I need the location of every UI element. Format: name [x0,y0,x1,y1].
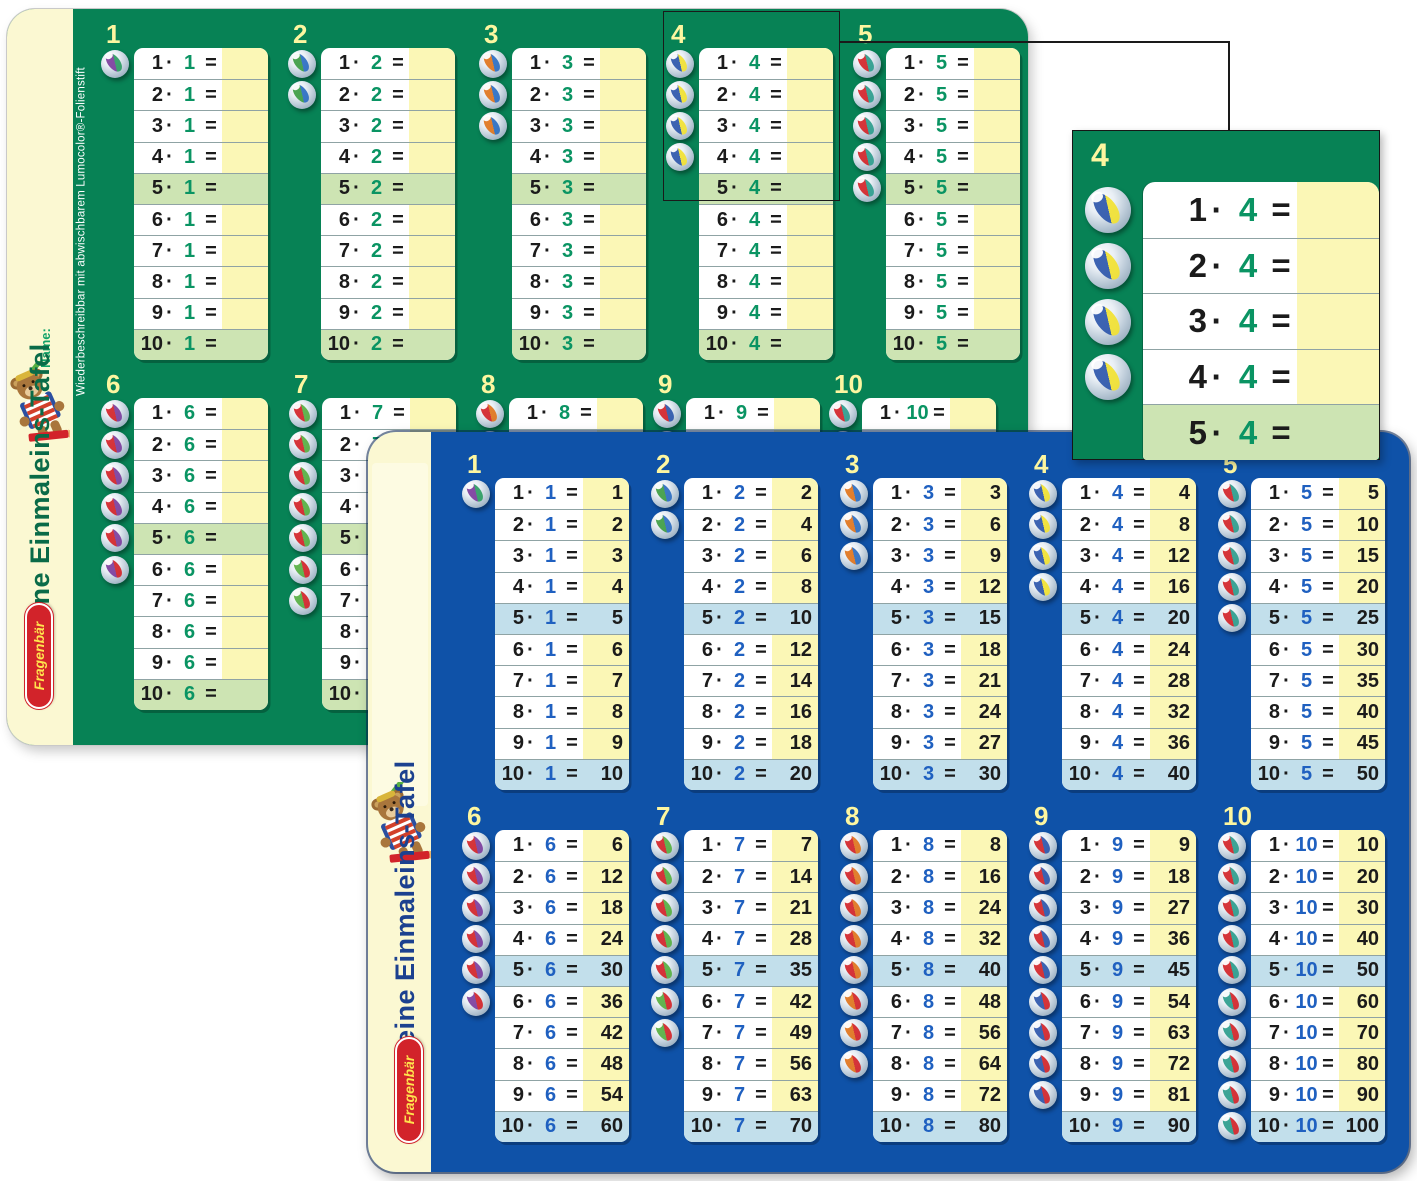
answer-cell [409,111,455,141]
column-group-6: 61·6=2·6=3·6=4·6=5·6=6·6=7·6=8·6=9·6=10·… [98,398,270,743]
answer-cell [600,80,646,110]
equals-sign: = [768,240,784,263]
equals-sign: = [581,302,597,325]
equals-sign: = [942,670,958,693]
answer-cell [974,267,1020,297]
answer-cell: 21 [961,666,1007,696]
equation-row: 10·1= [134,329,268,360]
answer-cell: 12 [1150,541,1196,571]
factor: 10 [1293,928,1320,951]
factor: 3 [915,545,942,568]
equation: 9·3= [873,729,961,759]
equation: 3·1= [134,111,222,141]
equals-sign: = [1320,928,1336,951]
operator-dot: · [1280,732,1293,755]
equation: 8·6= [495,1049,583,1079]
equals-sign: = [1320,639,1336,662]
equation-row: 2·6= [134,429,268,460]
operator-dot: · [1280,1115,1293,1138]
equation: 6·6= [495,987,583,1017]
answer-cell [409,80,455,110]
equation-row: 4·9=36 [1062,924,1196,955]
multiplicand: 2 [134,84,163,107]
equation-row: 4·6= [134,492,268,523]
equation: 10·4= [1062,760,1150,790]
equals-sign: = [942,959,958,982]
equals-sign: = [1320,607,1336,630]
equation-row: 9·4=36 [1062,728,1196,759]
equals-sign: = [1320,545,1336,568]
marble-icon [853,81,881,109]
answer-cell [222,111,268,141]
answer-cell [974,205,1020,235]
operator-dot: · [163,683,176,706]
operator-dot: · [163,333,176,356]
multiplicand: 6 [134,209,163,232]
equation-row: 6·8=48 [873,986,1007,1017]
operator-dot: · [713,1084,726,1107]
factor: 2 [363,209,390,232]
equation-row: 5·1= [134,173,268,204]
equation-row: 9·7=63 [684,1080,818,1111]
callout-line-vertical [1228,41,1230,131]
equation-row: 1·7=7 [684,830,818,861]
marble-icon [651,988,679,1016]
operator-dot: · [915,302,928,325]
factor: 10 [1293,866,1320,889]
operator-dot: · [524,514,537,537]
equation-row: 6·9=54 [1062,986,1196,1017]
equation-row: 6·2=12 [684,634,818,665]
factor: 4 [1227,191,1269,229]
equals-sign: = [753,701,769,724]
marble-icon [462,863,490,891]
factor: 7 [726,991,753,1014]
factor: 6 [176,465,203,488]
multiplicand: 2 [873,866,902,889]
factor: 2 [363,333,390,356]
answer-cell [950,398,996,429]
column-group-5: 51·5=2·5=3·5=4·5=5·5=6·5=7·5=8·5=9·5=10·… [850,48,1022,393]
answer-cell: 42 [583,1018,629,1048]
equation-card: 1·2=2·2=3·2=4·2=5·2=6·2=7·2=8·2=9·2=10·2… [321,48,455,360]
marble-icon [651,894,679,922]
column-group-3: 31·3=32·3=63·3=94·3=125·3=156·3=187·3=21… [837,478,1009,823]
multiplicand: 4 [1062,576,1091,599]
multiplicand: 10 [321,333,350,356]
detail-inset: 4 1·4=2·4=3·4=4·4=5·4= [1072,130,1380,460]
equation-row: 9·9=81 [1062,1080,1196,1111]
factor: 1 [176,84,203,107]
equation: 6·8= [873,987,961,1017]
equation-row: 5·8=40 [873,955,1007,986]
marble-icon [1218,480,1246,508]
equation-row: 1·8= [509,398,643,429]
factor: 5 [928,240,955,263]
operator-dot: · [902,959,915,982]
multiplicand: 10 [1251,763,1280,786]
multiplicand: 10 [699,333,728,356]
operator-dot: · [541,115,554,138]
equation: 6·2= [684,635,772,665]
equation-row: 1·10= [862,398,996,429]
operator-dot: · [713,1115,726,1138]
operator-dot: · [163,84,176,107]
factor: 2 [726,670,753,693]
multiplicand: 5 [1251,607,1280,630]
answer-cell: 72 [1150,1049,1196,1079]
factor: 5 [928,271,955,294]
factor: 6 [176,527,203,550]
equation-card: 1·3=2·3=3·3=4·3=5·3=6·3=7·3=8·3=9·3=10·3… [512,48,646,360]
equation-row: 3·6=18 [495,892,629,923]
operator-dot: · [1091,639,1104,662]
factor: 3 [554,209,581,232]
equation-row: 4·4= [1143,349,1379,405]
equation-row: 3·6= [134,460,268,491]
operator-dot: · [902,639,915,662]
equation: 9·3= [512,299,600,329]
equation: 5·2= [684,604,772,634]
answer-cell: 3 [583,541,629,571]
factor: 6 [537,834,564,857]
equation-row: 5·5=25 [1251,603,1385,634]
answer-cell: 70 [772,1112,818,1142]
equation: 4·1= [495,573,583,603]
equation: 8·5= [886,267,974,297]
equation: 3·5= [886,111,974,141]
operator-dot: · [541,146,554,169]
equation-row: 7·6=42 [495,1017,629,1048]
factor: 8 [915,928,942,951]
equation: 3·3= [512,111,600,141]
equation-row: 5·6= [134,523,268,554]
factor: 8 [915,959,942,982]
equation-row: 2·5= [886,79,1020,110]
equation: 3·1= [495,541,583,571]
equation-row: 2·9=18 [1062,861,1196,892]
marble-icon [853,143,881,171]
multiplicand: 10 [684,763,713,786]
answer-cell: 48 [583,1049,629,1079]
factor: 6 [537,928,564,951]
equals-sign: = [955,302,971,325]
operator-dot: · [713,834,726,857]
marble-icon [1218,1019,1246,1047]
equation-row: 1·6= [134,398,268,429]
equals-sign: = [955,209,971,232]
equation: 2·7= [684,862,772,892]
equals-sign: = [203,402,219,425]
factor: 3 [915,732,942,755]
operator-dot: · [902,732,915,755]
factor: 6 [537,1084,564,1107]
equation: 5·2= [321,174,409,204]
equation: 4·9= [1062,925,1150,955]
answer-cell: 14 [772,666,818,696]
equation-card: 1·4=42·4=83·4=124·4=165·4=206·4=247·4=28… [1062,478,1196,790]
marble-icon [651,925,679,953]
multiplicand: 5 [1251,959,1280,982]
factor: 5 [1293,763,1320,786]
equation-row: 9·3=27 [873,728,1007,759]
equation: 10·1= [495,760,583,790]
equals-sign: = [1131,928,1147,951]
multiplicand: 10 [873,763,902,786]
marble-icon [1029,925,1057,953]
equals-sign: = [955,115,971,138]
equation: 1·8= [873,830,961,861]
operator-dot: · [524,834,537,857]
answer-cell [600,330,646,360]
marble-icon [101,462,129,490]
marble-icon [1029,573,1057,601]
answer-cell [222,236,268,266]
equals-sign: = [203,177,219,200]
equation: 2·3= [873,510,961,540]
factor: 1 [537,732,564,755]
equation: 8·1= [495,697,583,727]
multiplicand: 2 [1159,247,1207,285]
equation: 1·8= [509,398,597,429]
equals-sign: = [203,302,219,325]
operator-dot: · [902,763,915,786]
equals-sign: = [564,1084,580,1107]
equation: 3·10= [1251,893,1339,923]
equals-sign: = [564,834,580,857]
multiplicand: 10 [134,683,163,706]
multiplicand: 2 [886,84,915,107]
equation-row: 2·2=4 [684,509,818,540]
equation: 10·3= [512,330,600,360]
factor: 4 [1104,482,1131,505]
equation: 9·2= [684,729,772,759]
equals-sign: = [203,527,219,550]
equation-row: 1·5= [886,48,1020,79]
operator-dot: · [538,402,551,425]
equation: 2·4= [1062,510,1150,540]
operator-dot: · [902,1053,915,1076]
operator-dot: · [163,177,176,200]
factor: 2 [726,701,753,724]
answer-cell: 27 [1150,893,1196,923]
operator-dot: · [713,576,726,599]
answer-cell: 25 [1339,604,1385,634]
answer-cell: 30 [961,760,1007,790]
marble-icon [289,400,317,428]
multiplicand: 1 [134,52,163,75]
operator-dot: · [713,670,726,693]
equation-row: 4·5= [886,142,1020,173]
multiplicand: 3 [512,115,541,138]
factor: 2 [363,84,390,107]
factor: 1 [176,52,203,75]
factor: 4 [741,302,768,325]
factor: 4 [741,333,768,356]
factor: 2 [726,639,753,662]
operator-dot: · [715,402,728,425]
equation-row: 7·5= [886,235,1020,266]
factor: 6 [176,652,203,675]
answer-cell: 18 [583,893,629,923]
answer-cell [222,586,268,616]
operator-dot: · [163,434,176,457]
answer-cell [222,205,268,235]
equation: 3·2= [684,541,772,571]
multiplicand: 10 [322,683,351,706]
multiplicand: 5 [684,607,713,630]
answer-cell: 35 [772,956,818,986]
marble-icon [289,462,317,490]
operator-dot: · [728,271,741,294]
equation-row: 4·8=32 [873,924,1007,955]
multiplicand: 6 [495,639,524,662]
equation-card: 1·1=12·1=23·1=34·1=45·1=56·1=67·1=78·1=8… [495,478,629,790]
factor: 10 [1293,959,1320,982]
marble-icon [289,431,317,459]
equation: 2·10= [1251,862,1339,892]
equation: 4·3= [873,573,961,603]
factor: 8 [915,1115,942,1138]
multiplicand: 3 [873,897,902,920]
equation: 6·1= [134,205,222,235]
factor: 1 [537,763,564,786]
equals-sign: = [578,402,594,425]
answer-cell: 8 [583,697,629,727]
equation: 10·6= [495,1112,583,1142]
equals-sign: = [931,402,947,425]
marble-icon [101,556,129,584]
equation: 5·10= [1251,956,1339,986]
factor: 5 [928,115,955,138]
multiplicand: 1 [321,52,350,75]
factor: 5 [928,302,955,325]
equation-row: 6·6=36 [495,986,629,1017]
equation-row: 8·2=16 [684,696,818,727]
equation: 10·5= [886,330,974,360]
equation: 1·6= [495,830,583,861]
operator-dot: · [541,302,554,325]
answer-cell [409,267,455,297]
marble-icon [1029,832,1057,860]
marble-icon [829,400,857,428]
equation: 1·9= [686,398,774,429]
equation: 1·5= [1251,478,1339,509]
equation: 10·9= [1062,1112,1150,1142]
equals-sign: = [390,84,406,107]
multiplicand: 7 [1251,1022,1280,1045]
equals-sign: = [1131,607,1147,630]
column-group-7: 71·7=72·7=143·7=214·7=285·7=356·7=427·7=… [648,830,820,1172]
equals-sign: = [753,1053,769,1076]
operator-dot: · [524,670,537,693]
answer-cell: 100 [1339,1112,1385,1142]
equation: 8·4= [1062,697,1150,727]
operator-dot: · [1091,576,1104,599]
equation-row: 2·4= [1143,238,1379,294]
factor: 1 [176,302,203,325]
equation-row: 1·4= [1143,182,1379,238]
operator-dot: · [713,545,726,568]
equals-sign: = [753,545,769,568]
equation-row: 4·10=40 [1251,924,1385,955]
equation-row: 7·6= [134,585,268,616]
factor: 7 [726,897,753,920]
operator-dot: · [1280,576,1293,599]
equation-card: 1·10=102·10=203·10=304·10=405·10=506·10=… [1251,830,1385,1142]
operator-dot: · [902,834,915,857]
equation: 2·9= [1062,862,1150,892]
operator-dot: · [541,84,554,107]
equation: 10·7= [684,1112,772,1142]
equation: 10·5= [1251,760,1339,790]
multiplicand: 3 [1251,897,1280,920]
equals-sign: = [1131,866,1147,889]
equation: 1·3= [512,48,600,79]
factor: 2 [363,52,390,75]
factor: 2 [726,482,753,505]
equals-sign: = [1131,834,1147,857]
marble-icon [840,832,868,860]
operator-dot: · [351,465,364,488]
equation: 7·10= [1251,1018,1339,1048]
equation-row: 2·5=10 [1251,509,1385,540]
operator-dot: · [915,177,928,200]
operator-dot: · [524,576,537,599]
factor: 1 [176,271,203,294]
operator-dot: · [1091,834,1104,857]
equation-row: 9·10=90 [1251,1080,1385,1111]
multiplicand: 4 [322,496,351,519]
multiplicand: 4 [495,576,524,599]
column-number: 8 [845,801,859,832]
operator-dot: · [1091,1022,1104,1045]
operator-dot: · [1091,1115,1104,1138]
equals-sign: = [1131,732,1147,755]
multiplicand: 4 [886,146,915,169]
answer-cell: 8 [772,573,818,603]
equation-row: 7·2= [321,235,455,266]
equation-row: 6·3= [512,204,646,235]
equation: 10·8= [873,1112,961,1142]
equals-sign: = [581,177,597,200]
multiplicand: 8 [495,1053,524,1076]
equals-sign: = [203,590,219,613]
multiplicand: 1 [1062,482,1091,505]
answer-cell: 9 [583,729,629,759]
factor: 2 [363,271,390,294]
multiplicand: 6 [1251,639,1280,662]
marble-icon [651,956,679,984]
operator-dot: · [1091,482,1104,505]
operator-dot: · [524,701,537,724]
answer-cell [222,493,268,523]
factor: 6 [176,559,203,582]
factor: 1 [537,545,564,568]
factor: 1 [176,115,203,138]
equation-row: 1·5=5 [1251,478,1385,509]
multiplicand: 1 [509,402,538,425]
factor: 9 [1104,866,1131,889]
factor: 5 [1293,545,1320,568]
operator-dot: · [163,146,176,169]
equals-sign: = [1131,514,1147,537]
operator-dot: · [902,897,915,920]
factor: 9 [1104,959,1131,982]
factor: 2 [363,302,390,325]
answer-cell: 40 [1339,697,1385,727]
answer-cell: 6 [961,510,1007,540]
